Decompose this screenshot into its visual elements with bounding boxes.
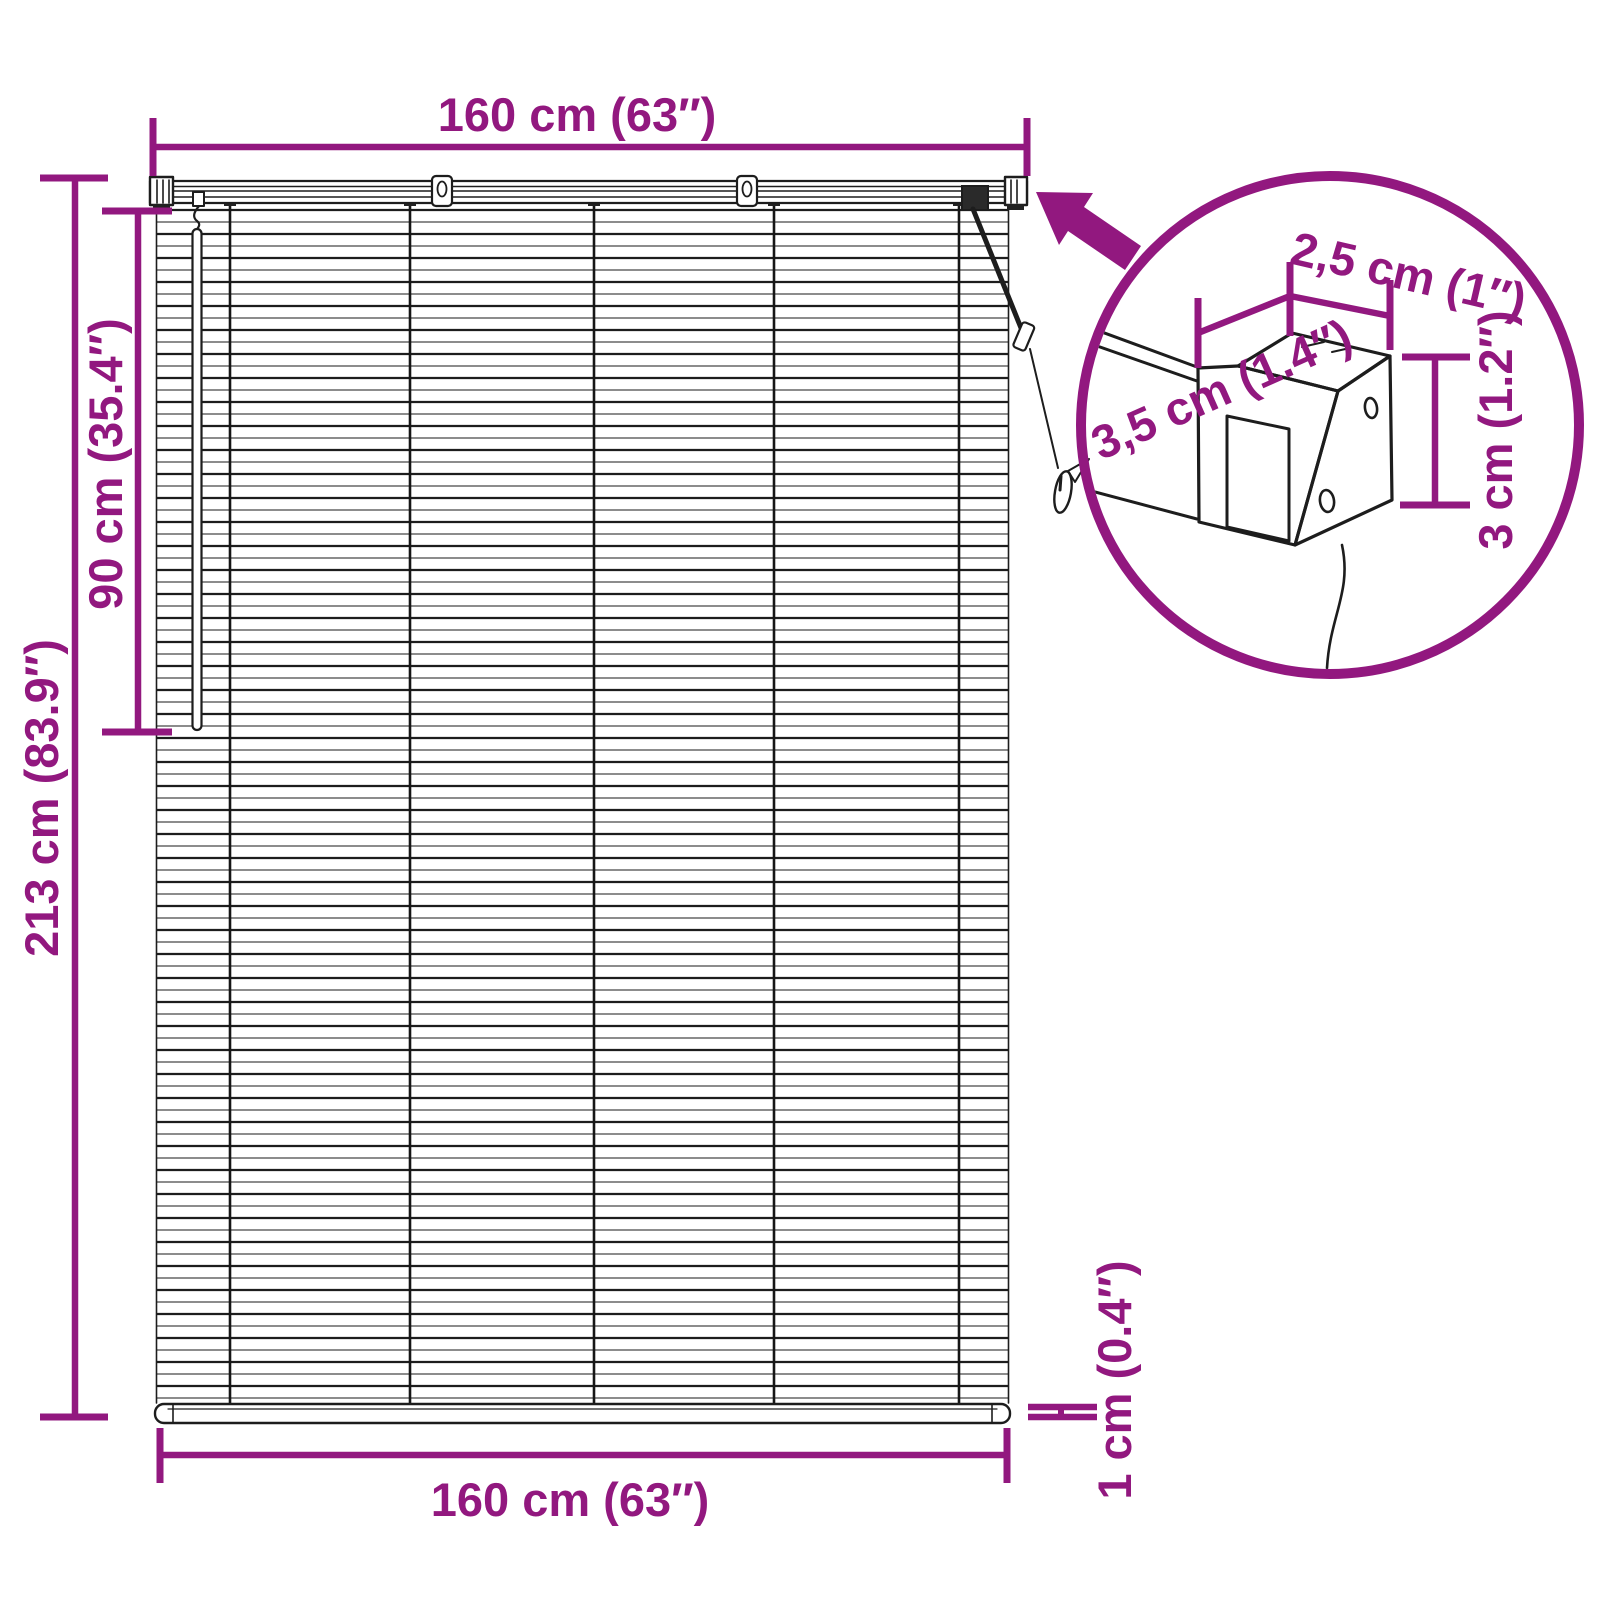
cord-sleeve <box>1013 321 1036 351</box>
bracket-cord <box>1327 545 1345 668</box>
cord-tassel <box>1051 470 1074 514</box>
venetian-blind-drawing <box>150 176 1089 1423</box>
callout-arrow-icon <box>1036 192 1141 270</box>
wand-rod <box>193 229 202 730</box>
bracket-detail-inset: 2,5 cm (1″) 3,5 cm (1.4″) 3 cm (1.2″) <box>1036 176 1579 674</box>
slats <box>157 210 1008 1398</box>
headrail-right-endcap <box>1005 177 1027 210</box>
endcap-foot <box>1007 204 1024 210</box>
dim-bottom-rail-thickness: 1 cm (0.4″) <box>1028 1260 1141 1499</box>
diagram-canvas: 160 cm (63″) 213 cm (83.9″) 90 cm (35.4″… <box>0 0 1600 1600</box>
pull-cord <box>973 209 1089 514</box>
dim-bottom-rail-label: 1 cm (0.4″) <box>1088 1260 1141 1499</box>
inset-height-label: 3 cm (1.2″) <box>1469 310 1522 549</box>
cord-lock <box>962 186 988 210</box>
dim-total-height-label: 213 cm (83.9″) <box>15 639 68 957</box>
bottom-rail <box>155 1404 1010 1423</box>
dim-wand-length-label: 90 cm (35.4″) <box>79 318 132 610</box>
dim-bottom-width: 160 cm (63″) <box>160 1428 1007 1526</box>
dim-bottom-width-label: 160 cm (63″) <box>431 1473 710 1526</box>
tilt-wand <box>193 192 205 730</box>
headrail-left-endcap <box>150 177 173 210</box>
mounting-clip <box>737 176 757 206</box>
dim-top-width-label: 160 cm (63″) <box>438 88 717 141</box>
dim-top-width: 160 cm (63″) <box>153 88 1027 176</box>
dimension-annotations: 160 cm (63″) 213 cm (83.9″) 90 cm (35.4″… <box>15 88 1141 1526</box>
mounting-clip <box>432 176 452 206</box>
product-dimension-diagram: 160 cm (63″) 213 cm (83.9″) 90 cm (35.4″… <box>0 0 1600 1600</box>
